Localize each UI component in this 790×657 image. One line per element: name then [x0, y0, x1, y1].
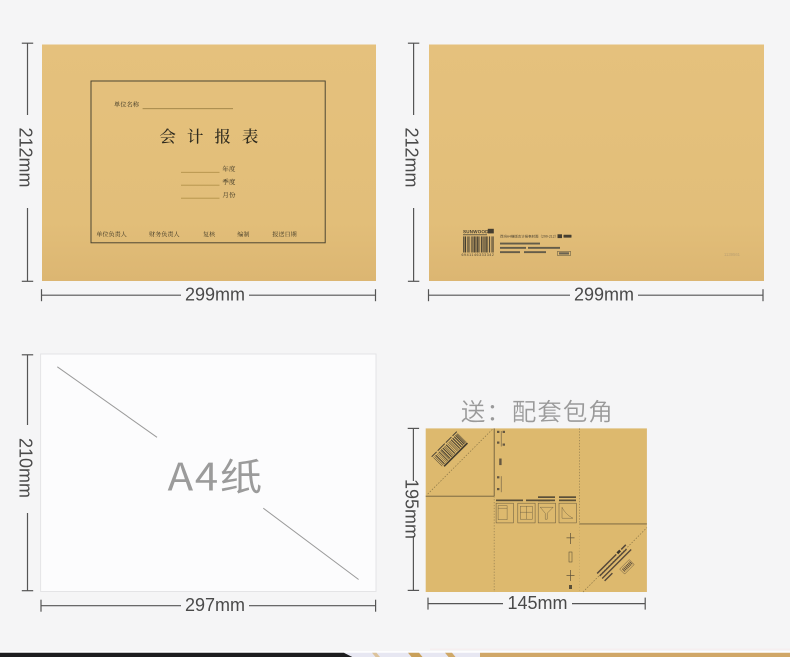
svg-text:1139561: 1139561: [724, 252, 741, 257]
svg-text:299mm: 299mm: [185, 285, 245, 305]
svg-text:299mm: 299mm: [574, 285, 634, 305]
svg-text:297mm: 297mm: [185, 595, 245, 615]
svg-text:212mm: 212mm: [16, 127, 36, 187]
svg-text:195mm: 195mm: [401, 479, 421, 539]
svg-text:212mm: 212mm: [402, 127, 422, 187]
svg-text:210mm: 210mm: [16, 438, 36, 498]
svg-text:145mm: 145mm: [507, 593, 567, 613]
svg-text:6941146333342: 6941146333342: [462, 253, 495, 257]
